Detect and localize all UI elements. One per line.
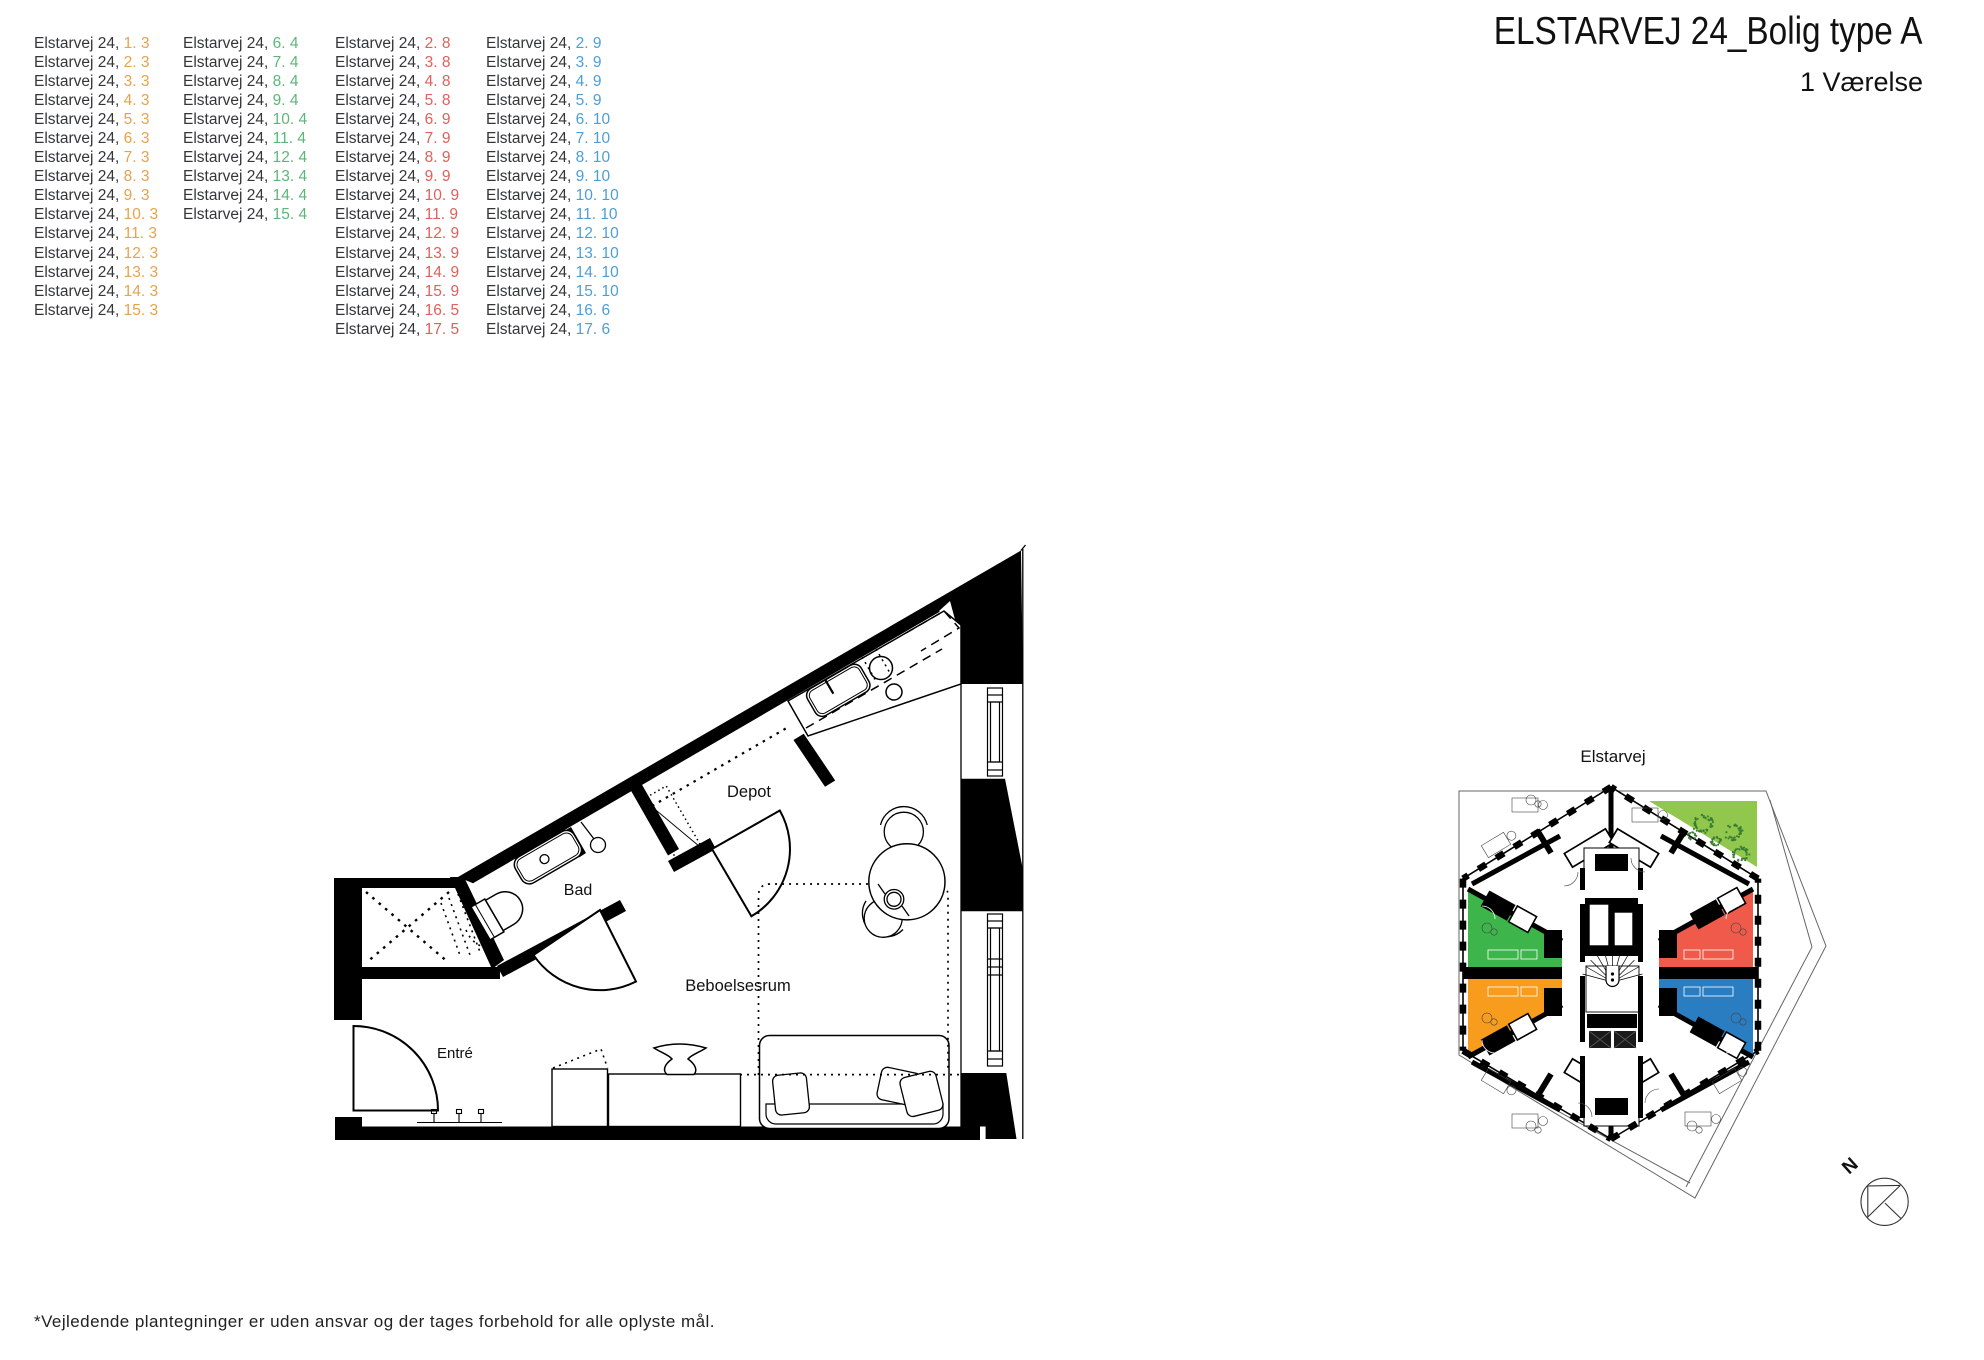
svg-text:Beboelsesrum: Beboelsesrum [685,977,790,995]
svg-text:Depot: Depot [727,783,771,801]
svg-text:Bad: Bad [564,882,592,899]
svg-text:Entré: Entré [437,1045,473,1062]
svg-text:N: N [1838,1154,1862,1179]
svg-text:Elstarvej: Elstarvej [1580,747,1645,766]
